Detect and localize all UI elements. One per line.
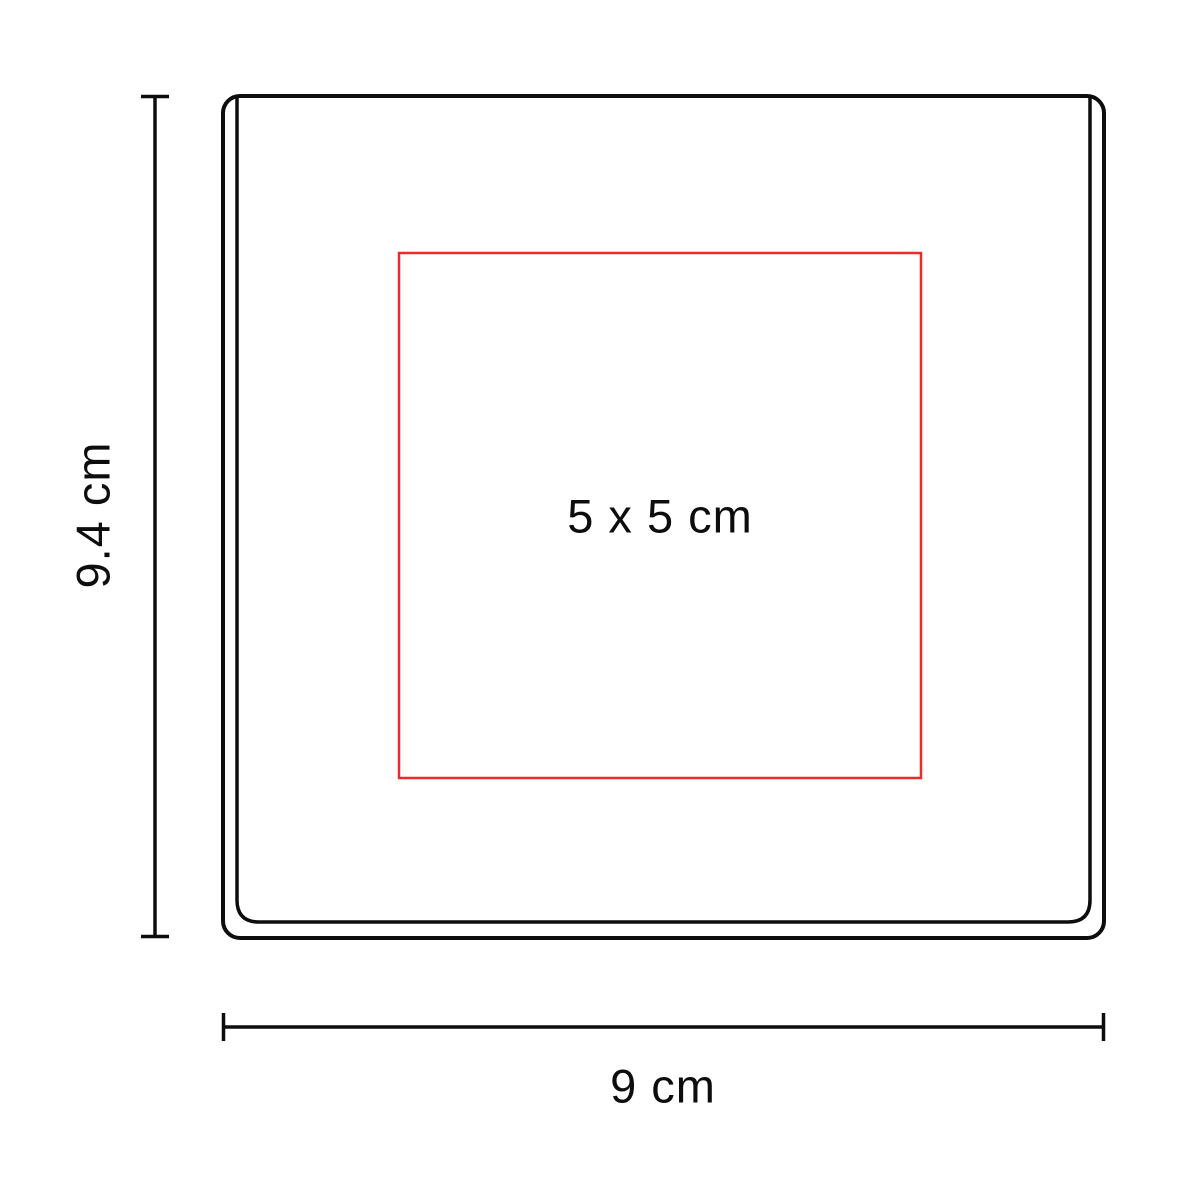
dimension-diagram xyxy=(0,0,1200,1200)
print-area-label: 5 x 5 cm xyxy=(567,489,753,544)
width-dimension-line xyxy=(224,1013,1104,1041)
diagram-canvas: 9.4 cm 5 x 5 cm 9 cm xyxy=(0,0,1200,1200)
width-dimension-label: 9 cm xyxy=(610,1059,716,1114)
height-dimension-line xyxy=(141,97,169,937)
height-dimension-label: 9.4 cm xyxy=(66,441,121,588)
